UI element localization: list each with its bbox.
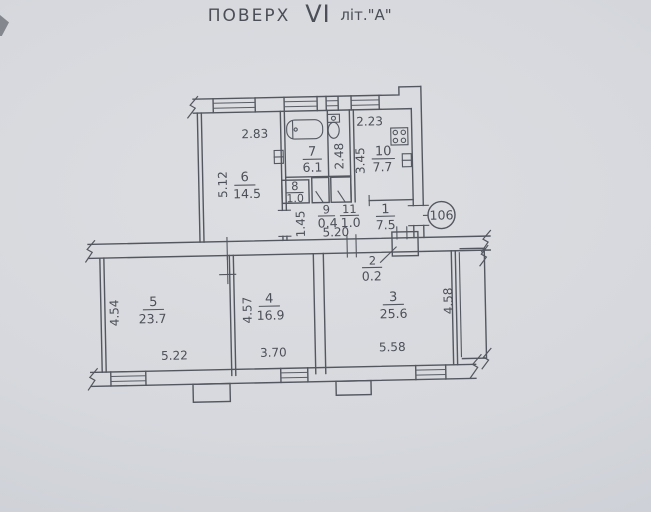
room6-door-ticks [278, 210, 291, 236]
window-glass-lines [281, 372, 308, 378]
left-exterior-wall [100, 258, 106, 372]
dim-room4-height: 4.57 [240, 297, 255, 324]
radiator-icon [402, 154, 411, 167]
adjacent-wall-section [460, 248, 486, 358]
plan-group: 106 6 14.5 7 6.1 10 7.7 8 1.0 [82, 85, 494, 404]
bathtub-icon [286, 120, 322, 140]
window-frame [284, 97, 317, 112]
room8-area: 1.0 [286, 192, 304, 205]
right-wall-outer [421, 86, 424, 237]
corridor-wall-bottom [88, 250, 490, 258]
window-glass-lines [111, 376, 146, 382]
title: ПОВЕРХ VI літ."А" [208, 0, 392, 28]
window-glass-lines [213, 102, 255, 108]
dim-kitchen-width: 2.23 [356, 114, 383, 129]
stove-icon [391, 128, 408, 145]
window-frame [111, 371, 146, 386]
middle-wall-band [85, 225, 492, 286]
title-liter: літ."А" [340, 6, 391, 24]
room1-area: 7.5 [376, 217, 396, 232]
room11-leader-line [338, 191, 345, 202]
window-frame [281, 368, 308, 383]
title-word: ПОВЕРХ [208, 6, 290, 26]
room1-number: 1 [381, 202, 390, 217]
kitchen-bottom-wall [369, 200, 413, 201]
right-wall-inner [411, 109, 414, 238]
window-glass-lines [351, 100, 379, 106]
room4-area: 16.9 [256, 307, 284, 323]
dim-kitchen-height: 3.45 [353, 147, 368, 174]
room6-right-wall [280, 111, 287, 240]
window-frame [213, 98, 255, 113]
room3-area: 25.6 [379, 306, 407, 322]
window-frame [416, 365, 446, 380]
window-glass-lines [326, 101, 338, 106]
dim-line-vertical [459, 253, 461, 357]
dim-room6-width: 2.83 [241, 127, 268, 142]
room5-number: 5 [149, 295, 158, 310]
room10-area: 7.7 [372, 159, 392, 174]
floor-plan-photo: ПОВЕРХ VI літ."А" [0, 0, 651, 512]
room9-number: 9 [323, 202, 331, 216]
dim-room5-height: 4.54 [107, 299, 122, 326]
room6-area: 14.5 [233, 186, 261, 202]
closet11-box [331, 177, 352, 202]
window-frame [351, 95, 379, 110]
dim-room3-width: 5.58 [379, 340, 406, 355]
room6-left-wall [197, 113, 204, 242]
dim-hall-length: 5.20 [322, 225, 349, 240]
room5-room4-partition [229, 255, 236, 375]
title-floor-number: VI [305, 0, 331, 28]
dim-room5-width: 5.22 [161, 348, 188, 363]
dim-wc-height: 2.48 [332, 143, 347, 170]
room7-area: 6.1 [302, 160, 322, 175]
balcony-box [336, 381, 371, 396]
room5-area: 23.7 [139, 311, 167, 327]
top-wall-outer [193, 86, 421, 99]
room4-number: 4 [265, 292, 274, 307]
room4-room3-partition [313, 254, 326, 374]
window-frame [326, 96, 338, 110]
window-glass-lines [416, 369, 446, 375]
floor-plan-drawing: ПОВЕРХ VI літ."А" [0, 0, 651, 512]
room2-number: 2 [369, 253, 377, 267]
corridor-wall-top [88, 236, 490, 244]
window-glass-lines [284, 101, 317, 107]
room2-area: 0.2 [362, 268, 382, 283]
dim-hall-width: 1.45 [293, 210, 308, 237]
room9-leader-line [316, 192, 323, 203]
room10-number: 10 [375, 144, 392, 159]
room3-number: 3 [389, 290, 398, 305]
dim-room3-height: 4.58 [441, 287, 456, 314]
balcony-box [193, 383, 230, 402]
toilet-icon [327, 114, 340, 138]
dim-room4-width: 3.70 [260, 345, 287, 360]
room8-number: 8 [291, 179, 299, 193]
dim-room6-height: 5.12 [216, 171, 231, 198]
room6-number: 6 [240, 170, 249, 185]
room2-leader-line [380, 247, 396, 262]
room7-number: 7 [308, 145, 317, 160]
apartment-number: 106 [429, 207, 453, 222]
